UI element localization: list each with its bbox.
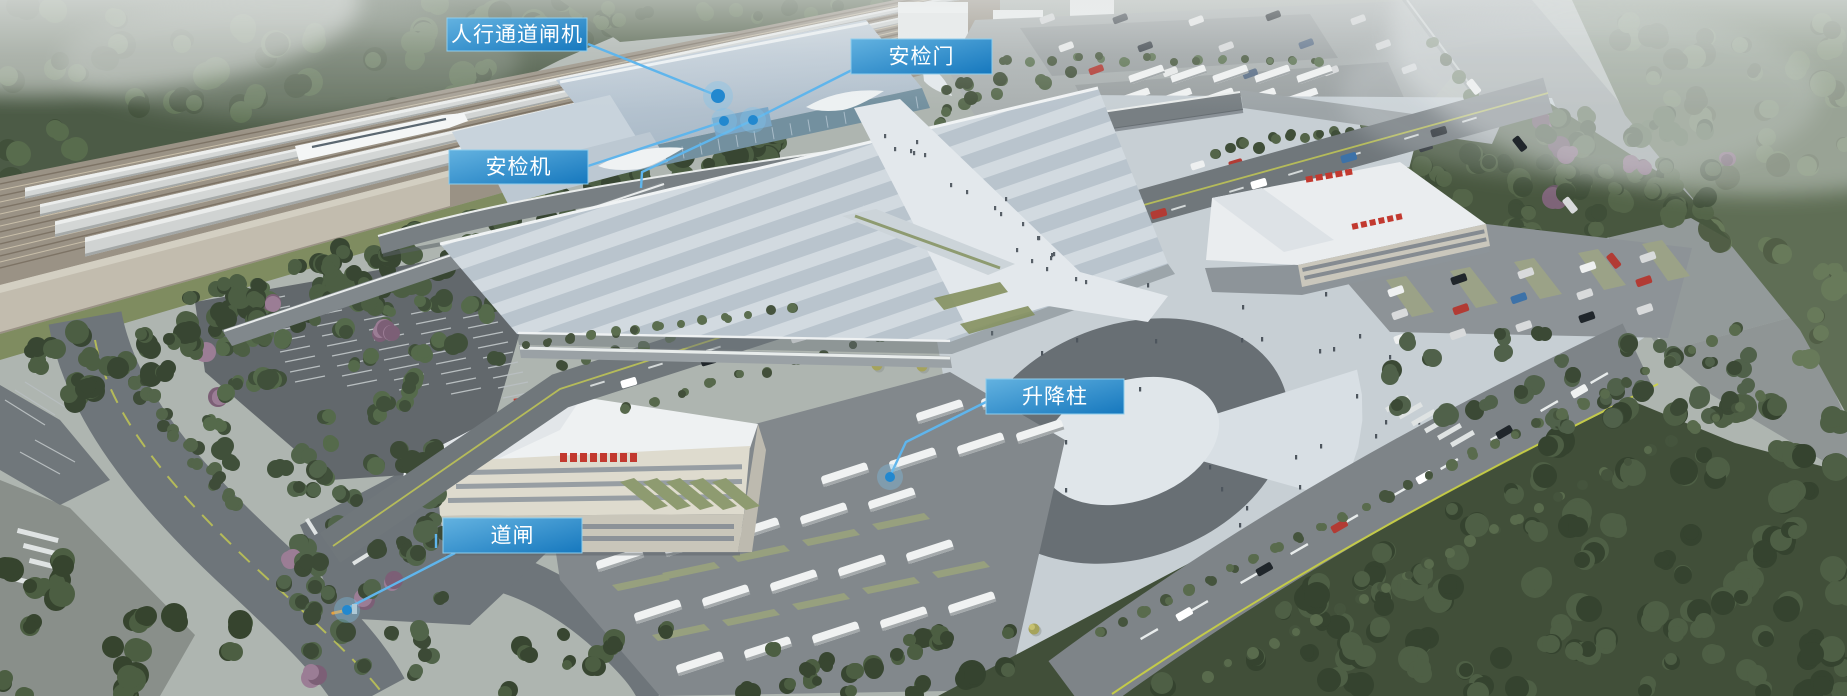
svg-text:升降柱: 升降柱 [1022,386,1088,409]
svg-text:安检门: 安检门 [889,46,955,69]
svg-text:安检机: 安检机 [486,156,552,179]
svg-text:道闸: 道闸 [491,525,535,548]
svg-text:人行通道闸机: 人行通道闸机 [451,24,583,47]
